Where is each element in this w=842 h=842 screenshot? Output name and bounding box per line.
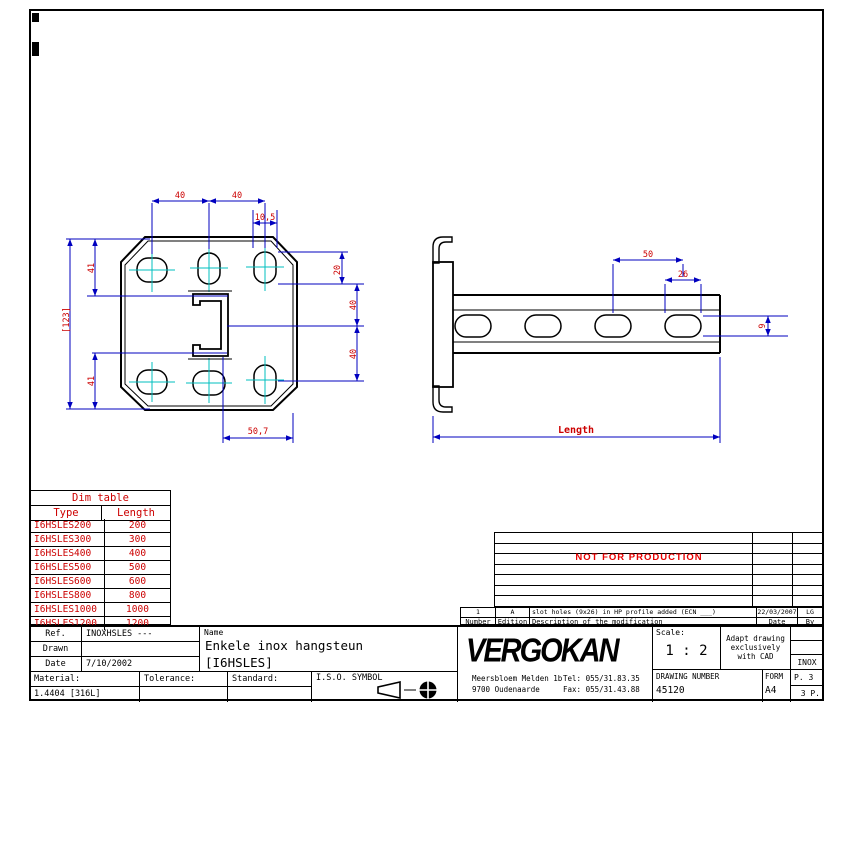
company-tel: Tel: 055/31.83.35: [563, 674, 640, 684]
form-label: FORM: [763, 670, 790, 681]
plate-extension-lines: [66, 203, 364, 443]
dim-rail-slot-length: 26: [678, 270, 688, 280]
name-label: Name: [200, 627, 457, 637]
modification-table-rows: 1 A slot holes (9x26) in HP profile adde…: [460, 607, 823, 625]
table-row: I6HSLES200200: [31, 519, 170, 532]
dim-bottom: 50,7: [248, 427, 268, 437]
scale-label: Scale:: [653, 627, 720, 637]
bottom-lip: [433, 386, 452, 412]
page-number: P. 3: [791, 670, 823, 686]
dim-table-col-type: Type: [31, 506, 102, 520]
scale-cell: Scale: 1 : 2: [653, 627, 721, 670]
form-cell: FORM A4: [763, 670, 791, 702]
not-for-production-watermark: NOT FOR PRODUCTION: [527, 553, 751, 564]
form-value: A4: [763, 681, 790, 696]
cad-note-line1: Adapt drawing: [721, 634, 790, 643]
mod-by: LG: [798, 608, 822, 617]
modification-entry: 1 A slot holes (9x26) in HP profile adde…: [461, 608, 822, 618]
tolerance-label: Tolerance:: [140, 672, 227, 687]
dim-table-rows: I6HSLES200200 I6HSLES300300 I6HSLES40040…: [31, 519, 170, 624]
drawing-sheet: { "plate_view": { "dims": { "top_span1":…: [0, 0, 842, 842]
empty-box-2: [791, 641, 823, 655]
drawn-label: Drawn: [30, 642, 82, 657]
fold-mark: [32, 13, 39, 22]
dim-table-title: Dim table: [31, 491, 170, 506]
table-row: I6HSLES500500: [31, 560, 170, 574]
mod-number: 1: [461, 608, 496, 617]
cad-note-cell: Adapt drawing exclusively with CAD: [721, 627, 791, 670]
first-angle-projection-icon: [374, 680, 454, 700]
iso-symbol-cell: I.S.O. SYMBOL: [312, 672, 458, 702]
date-label: Date: [30, 657, 82, 672]
drawing-name: Enkele inox hangsteun: [200, 637, 457, 653]
dim-rail-length: Length: [558, 425, 594, 436]
drawing-number-value: 45120: [653, 681, 762, 696]
c-channel-section: [188, 291, 232, 359]
date-value: 7/10/2002: [82, 657, 200, 672]
centerlines: [129, 243, 284, 404]
cad-note-line2: exclusively: [721, 643, 790, 652]
mod-edition: A: [496, 608, 530, 617]
drawn-value: [82, 642, 200, 657]
material-cell: Material: 1.4404 [316L]: [30, 672, 140, 702]
drawing-number-cell: DRAWING NUMBER 45120: [653, 670, 763, 702]
dim-overall-height: [123]: [62, 307, 72, 333]
material-label: Material:: [30, 672, 139, 687]
empty-box-1: [791, 627, 823, 641]
page-count: 3 P.: [791, 686, 823, 702]
table-row: I6HSLES400400: [31, 546, 170, 560]
top-lip: [433, 237, 452, 263]
cad-note-line3: with CAD: [721, 652, 790, 661]
dim-left-top: 41: [87, 263, 97, 273]
company-cell: VERGOKAN Meersbloem Melden 1b 9700 Ouden…: [458, 627, 653, 702]
cad-drawing: 40 40 10,5 [123] 41 41 20 40 40 50,7: [0, 0, 842, 842]
drawing-number-label: DRAWING NUMBER: [653, 670, 762, 681]
company-logo: VERGOKAN: [458, 627, 652, 671]
dim-top-span1: 40: [175, 191, 185, 201]
plate-view: 40 40 10,5 [123] 41 41 20 40 40 50,7: [62, 191, 364, 443]
dim-right-top: 20: [333, 265, 343, 275]
ref-value: INOXHSLES ---: [82, 627, 200, 642]
table-row: I6HSLES600600: [31, 574, 170, 588]
dim-left-bottom: 41: [87, 376, 97, 386]
dim-top-span2: 40: [232, 191, 242, 201]
dim-table: Dim table Type Length I6HSLES200200 I6HS…: [30, 490, 171, 625]
material-value: 1.4404 [316L]: [30, 687, 139, 702]
table-row: I6HSLES800800: [31, 588, 170, 602]
table-row: I6HSLES10001000: [31, 602, 170, 616]
name-cell: Name Enkele inox hangsteun [I6HSLES]: [200, 627, 458, 672]
mod-description: slot holes (9x26) in HP profile added (E…: [530, 608, 757, 617]
drawing-code: [I6HSLES]: [200, 653, 457, 670]
mod-date: 22/03/2007: [757, 608, 798, 617]
dim-slot-width: 10,5: [255, 213, 275, 223]
dim-right-bottom: 40: [349, 349, 359, 359]
standard-label: Standard:: [228, 672, 311, 687]
tolerance-cell: Tolerance:: [140, 672, 228, 702]
plate-slot-holes: [137, 252, 276, 396]
dim-rail-slot-height: 9: [758, 323, 768, 328]
table-row: I6HSLES300300: [31, 532, 170, 546]
fold-mark: [32, 42, 39, 56]
inox-box: INOX: [791, 655, 823, 670]
dim-rail-pitch: 50: [643, 250, 653, 260]
rail-view: 50 26 9 Length: [433, 237, 788, 443]
dim-table-col-length: Length: [102, 506, 170, 520]
rail-dimension-lines: [433, 260, 768, 437]
company-fax: Fax: 055/31.43.88: [563, 685, 640, 695]
company-address1: Meersbloem Melden 1b: [472, 674, 562, 684]
modification-table-grid: [494, 532, 823, 607]
ref-label: Ref.: [30, 627, 82, 642]
standard-cell: Standard:: [228, 672, 312, 702]
dim-right-mid: 40: [349, 300, 359, 310]
title-block: Ref. INOXHSLES --- Drawn Date 7/10/2002 …: [30, 625, 823, 700]
scale-value: 1 : 2: [653, 637, 720, 659]
rail-slot-holes: [455, 315, 701, 337]
company-address2: 9700 Oudenaarde: [472, 685, 540, 695]
